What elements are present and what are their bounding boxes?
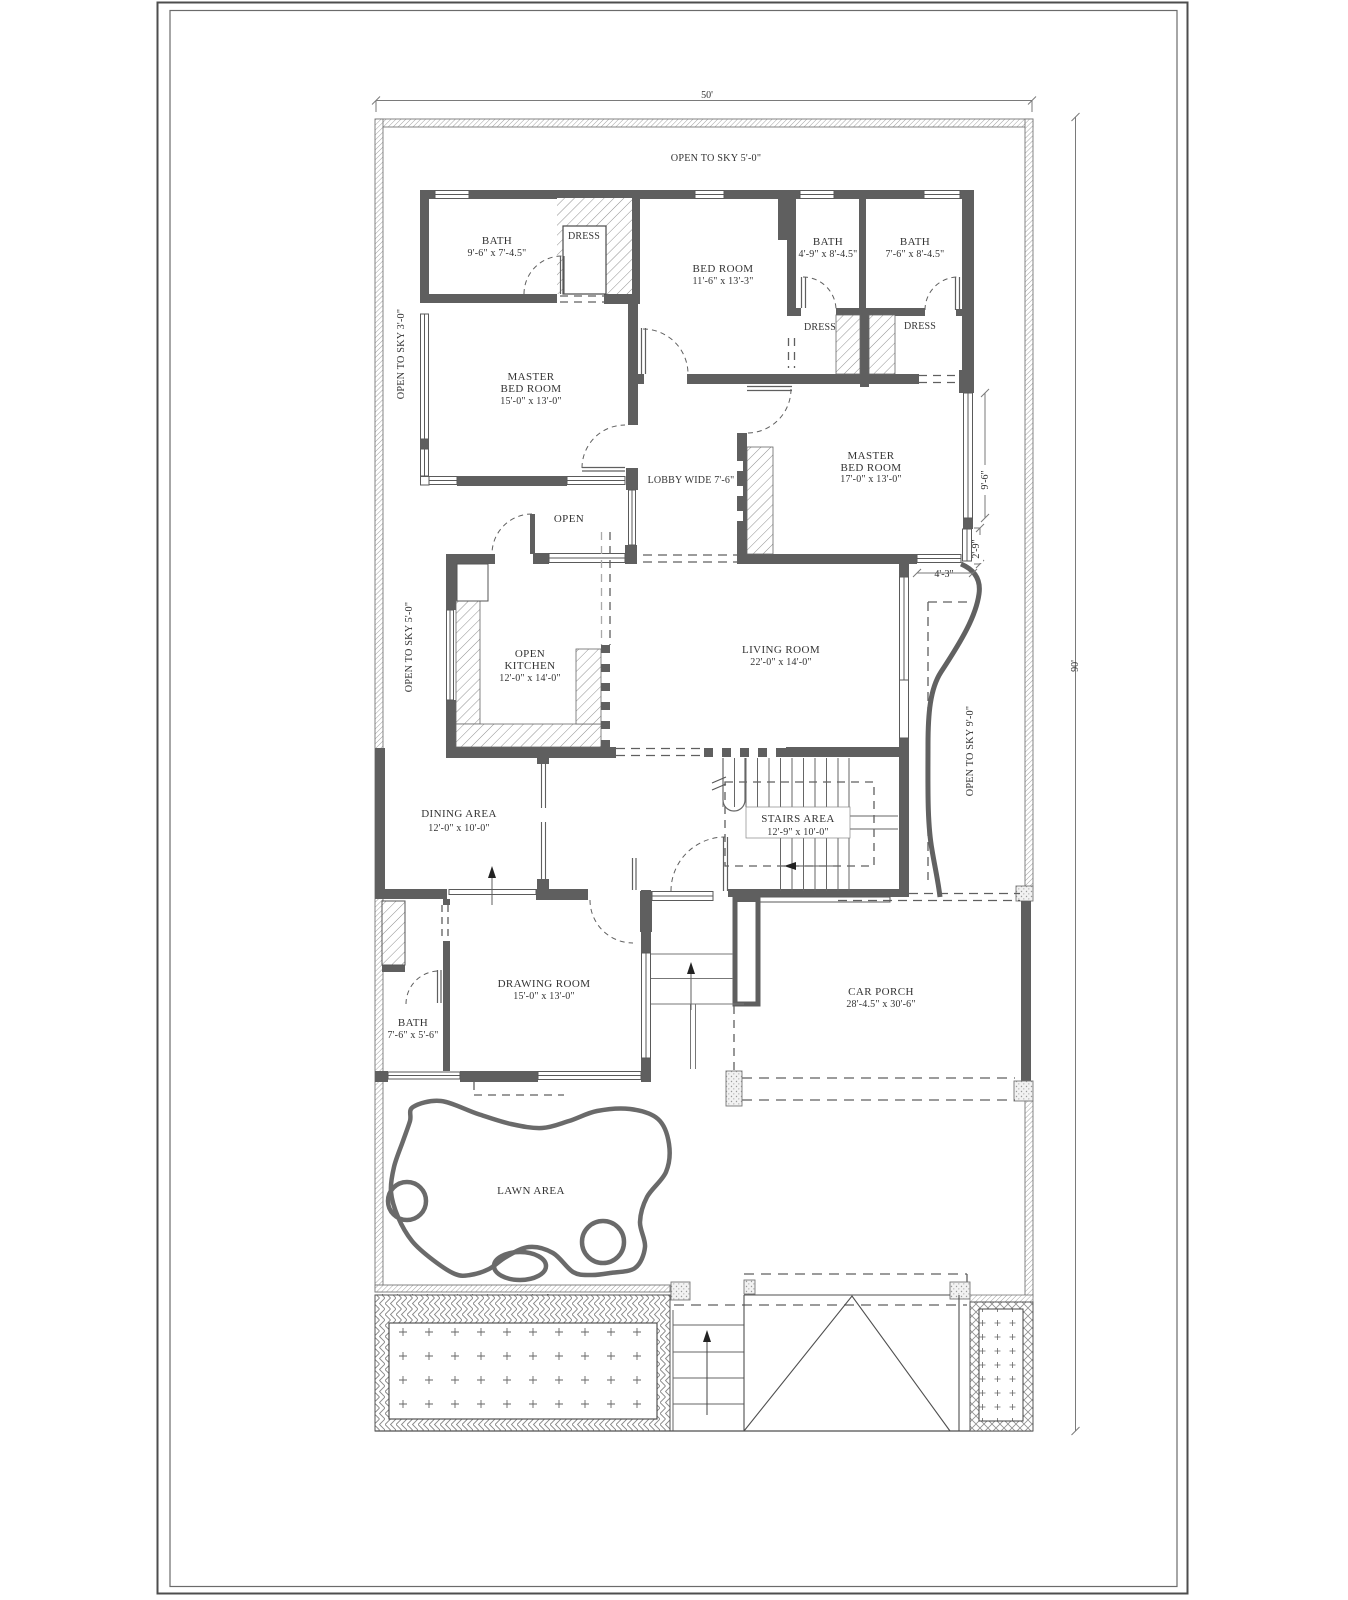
- svg-text:7'-6" x 5'-6": 7'-6" x 5'-6": [387, 1030, 438, 1041]
- svg-text:LAWN AREA: LAWN AREA: [497, 1185, 565, 1197]
- svg-text:28'-4.5" x 30'-6": 28'-4.5" x 30'-6": [846, 999, 915, 1010]
- svg-text:11'-6" x 13'-3": 11'-6" x 13'-3": [692, 276, 753, 287]
- svg-text:OPEN: OPEN: [554, 513, 584, 525]
- svg-text:50': 50': [701, 90, 713, 101]
- svg-text:MASTER: MASTER: [507, 371, 554, 383]
- svg-text:15'-0" x 13'-0": 15'-0" x 13'-0": [500, 396, 561, 407]
- svg-text:90': 90': [1070, 660, 1081, 672]
- svg-text:MASTER: MASTER: [847, 450, 894, 462]
- svg-text:17'-0" x 13'-0": 17'-0" x 13'-0": [840, 474, 901, 485]
- svg-text:BATH: BATH: [900, 236, 930, 248]
- svg-text:BED ROOM: BED ROOM: [693, 263, 754, 275]
- svg-text:4'-3": 4'-3": [934, 569, 953, 580]
- svg-text:DRESS: DRESS: [568, 231, 600, 242]
- svg-text:OPEN TO SKY 5'-0": OPEN TO SKY 5'-0": [404, 602, 415, 692]
- svg-text:12'-0" x 14'-0": 12'-0" x 14'-0": [499, 673, 560, 684]
- svg-text:DRESS: DRESS: [904, 321, 936, 332]
- svg-text:4'-9" x 8'-4.5": 4'-9" x 8'-4.5": [799, 249, 858, 260]
- svg-text:BATH: BATH: [813, 236, 843, 248]
- svg-text:BED ROOM: BED ROOM: [841, 462, 902, 474]
- svg-text:22'-0" x 14'-0": 22'-0" x 14'-0": [750, 657, 811, 668]
- svg-text:DINING AREA: DINING AREA: [421, 808, 497, 820]
- svg-text:STAIRS AREA: STAIRS AREA: [761, 813, 835, 825]
- svg-text:OPEN TO SKY 9'-0": OPEN TO SKY 9'-0": [965, 706, 976, 796]
- svg-text:LOBBY WIDE 7'-6": LOBBY WIDE 7'-6": [648, 475, 735, 486]
- svg-text:BATH: BATH: [482, 235, 512, 247]
- svg-text:LIVING ROOM: LIVING ROOM: [742, 644, 820, 656]
- svg-text:9'-6": 9'-6": [980, 470, 991, 489]
- svg-text:9'-6" x 7'-4.5": 9'-6" x 7'-4.5": [468, 248, 527, 259]
- svg-text:OPEN: OPEN: [515, 648, 545, 660]
- svg-text:15'-0" x 13'-0": 15'-0" x 13'-0": [513, 991, 574, 1002]
- svg-text:DRESS: DRESS: [804, 322, 836, 333]
- svg-text:OPEN TO SKY 5'-0": OPEN TO SKY 5'-0": [671, 153, 761, 164]
- svg-text:12'-0" x 10'-0": 12'-0" x 10'-0": [428, 823, 489, 834]
- svg-text:BED ROOM: BED ROOM: [501, 383, 562, 395]
- svg-text:BATH: BATH: [398, 1017, 428, 1029]
- svg-text:KITCHEN: KITCHEN: [504, 660, 555, 672]
- svg-text:2'-9": 2'-9": [971, 539, 982, 558]
- svg-text:CAR PORCH: CAR PORCH: [848, 986, 914, 998]
- svg-text:7'-6" x 8'-4.5": 7'-6" x 8'-4.5": [886, 249, 945, 260]
- svg-text:OPEN TO SKY 3'-0": OPEN TO SKY 3'-0": [396, 309, 407, 399]
- svg-text:DRAWING ROOM: DRAWING ROOM: [498, 978, 591, 990]
- svg-text:12'-9" x 10'-0": 12'-9" x 10'-0": [767, 827, 828, 838]
